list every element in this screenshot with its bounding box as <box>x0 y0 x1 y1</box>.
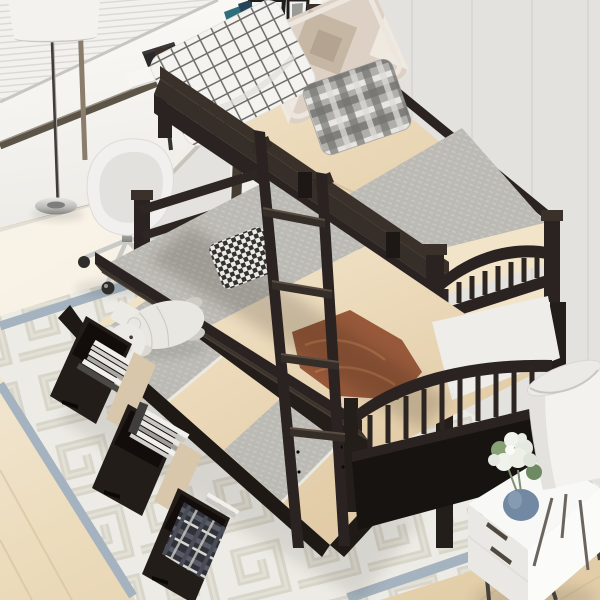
lamp-base-cap <box>47 202 65 209</box>
floor-lamp-shade <box>8 0 100 42</box>
foot-far-post-cap <box>541 210 563 221</box>
scene-canvas <box>0 0 600 600</box>
vase-body <box>503 489 539 521</box>
lower-head-post-cap <box>131 190 153 200</box>
near-rail-block-2 <box>386 232 400 258</box>
near-rail-block-1 <box>298 172 312 198</box>
bedroom-product-photo <box>0 0 600 600</box>
vase-highlight <box>508 491 522 509</box>
foot-near-post-cap <box>423 244 447 255</box>
